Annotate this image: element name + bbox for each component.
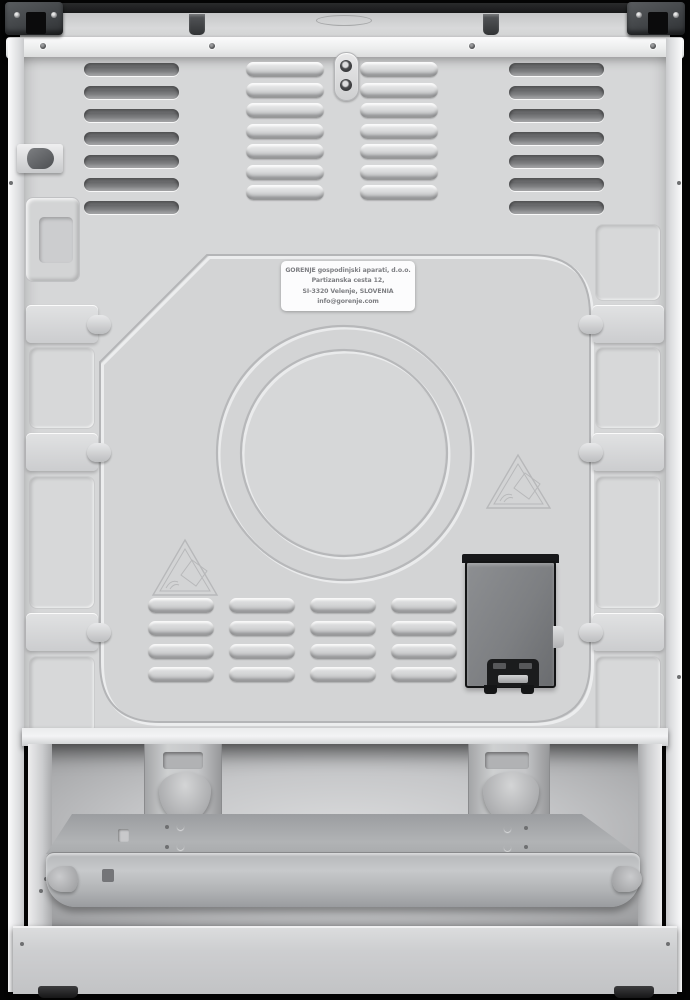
lid-hinge-tab-left: [189, 14, 205, 35]
vent-louver: [310, 621, 376, 636]
kick-panel: [13, 926, 677, 994]
vent-louver: [246, 62, 324, 77]
clamp-slot: [498, 675, 528, 683]
screw-icon: [650, 43, 656, 49]
screw-icon: [666, 942, 670, 946]
cable-clamp: [487, 659, 539, 687]
tray-hole: [118, 829, 129, 842]
latch-knob: [27, 148, 54, 169]
clip-tab: [579, 443, 603, 462]
tray-front-hole: [102, 869, 114, 882]
vent-louver: [148, 598, 214, 613]
screw-icon: [469, 43, 475, 49]
clip-tab: [87, 623, 111, 642]
label-line-2: Partizanska cesta 12,: [312, 276, 385, 285]
screw-icon: [165, 845, 169, 849]
cavity-post-right: [638, 744, 662, 926]
screw-icon: [677, 181, 681, 185]
drawer-rail-right: [468, 744, 550, 822]
clamp-notch: [519, 663, 532, 669]
screw-icon: [40, 43, 46, 49]
gorenje-oval-logo-emboss: [316, 15, 372, 26]
screw-icon: [14, 12, 20, 18]
screw-icon: [51, 12, 57, 18]
cooker-rear-photo: GORENJE gospodinjski aparati, d.o.o. Par…: [0, 0, 690, 1000]
bracket-notch: [648, 12, 668, 34]
screw-icon: [504, 825, 511, 832]
panel-recess: [596, 657, 660, 733]
rail-cutout: [485, 752, 529, 769]
terminal-box-body: [465, 561, 556, 688]
label-line-3: SI-3320 Velenje, SLOVENIA: [303, 287, 394, 296]
vent-louver: [246, 144, 324, 159]
screw-icon: [524, 845, 528, 849]
drawer-rail-left: [144, 744, 222, 822]
flange-right: [588, 57, 668, 735]
vent-louver: [229, 598, 295, 613]
clamp-foot: [521, 685, 534, 694]
vent-louver: [391, 598, 457, 613]
vent-louver: [148, 667, 214, 682]
rail-bumper: [483, 772, 539, 820]
vent-louver: [229, 644, 295, 659]
vent-louver: [360, 83, 438, 98]
rail-bumper: [159, 772, 211, 820]
terminal-box: [465, 554, 556, 688]
vent-louver: [246, 83, 324, 98]
vent-louver: [391, 644, 457, 659]
foot-right: [614, 986, 654, 998]
vent-louver: [360, 144, 438, 159]
terminal-box-tab: [553, 626, 564, 648]
corner-bracket-left: [5, 2, 63, 35]
vent-louver: [148, 644, 214, 659]
clamp-foot: [484, 685, 497, 694]
tray-handle-left: [48, 866, 78, 892]
bracket-notch: [26, 12, 46, 34]
panel-recess: [596, 225, 660, 300]
mounting-frame-emboss: [25, 197, 80, 282]
panel-recess: [596, 348, 660, 428]
vent-louver: [246, 185, 324, 200]
tray-handle-right: [612, 866, 642, 892]
latch-bracket-left: [17, 144, 63, 173]
screw-icon: [165, 825, 169, 829]
vent-louver: [360, 62, 438, 77]
screw-icon: [177, 843, 184, 850]
vent-louver: [391, 667, 457, 682]
vent-louver: [310, 667, 376, 682]
screw-hole: [340, 60, 352, 72]
screw-icon: [636, 12, 642, 18]
vent-louver: [229, 667, 295, 682]
lid-hinge-tab-right: [483, 14, 499, 35]
clip-tab: [87, 315, 111, 334]
vent-louver: [360, 103, 438, 118]
panel-recess: [30, 657, 94, 733]
screw-icon: [209, 43, 215, 49]
clamp-notch: [493, 663, 506, 669]
screw-icon: [20, 942, 24, 946]
screw-icon: [504, 844, 511, 851]
vent-louver: [246, 103, 324, 118]
label-line-1: GORENJE gospodinjski aparati, d.o.o.: [285, 266, 410, 275]
vent-louver: [148, 621, 214, 636]
vent-louver: [310, 598, 376, 613]
screw-icon: [39, 889, 43, 893]
label-line-4: info@gorenje.com: [317, 297, 378, 306]
foot-left: [38, 986, 78, 998]
frame-hole: [39, 217, 73, 263]
vent-group-center-right: [360, 62, 438, 200]
service-label: GORENJE gospodinjski aparati, d.o.o. Par…: [281, 261, 415, 311]
clip-tab: [579, 315, 603, 334]
screw-icon: [677, 675, 681, 679]
screw-icon: [524, 826, 528, 830]
vent-louver: [229, 621, 295, 636]
vent-grid-lower: [148, 598, 457, 682]
baking-tray-top: [46, 814, 636, 854]
vent-louver: [360, 165, 438, 180]
panel-recess: [30, 348, 94, 428]
screw-hole: [340, 79, 352, 91]
clip-tab: [579, 623, 603, 642]
vent-group-center-left: [246, 62, 324, 200]
panel-recess: [596, 477, 660, 608]
vent-louver: [246, 165, 324, 180]
vent-louver: [246, 124, 324, 139]
keyhole-bracket: [334, 52, 359, 101]
screw-icon: [9, 181, 13, 185]
clip-tab: [87, 443, 111, 462]
rail-cutout: [163, 752, 203, 769]
vent-louver: [360, 185, 438, 200]
panel-recess: [30, 477, 94, 608]
corner-bracket-right: [627, 2, 685, 35]
cavity-post-left: [28, 744, 52, 926]
screw-icon: [177, 823, 184, 830]
vent-louver: [391, 621, 457, 636]
baking-tray-front: [46, 852, 640, 907]
vent-louver: [360, 124, 438, 139]
vent-louver: [310, 644, 376, 659]
screw-icon: [673, 12, 679, 18]
